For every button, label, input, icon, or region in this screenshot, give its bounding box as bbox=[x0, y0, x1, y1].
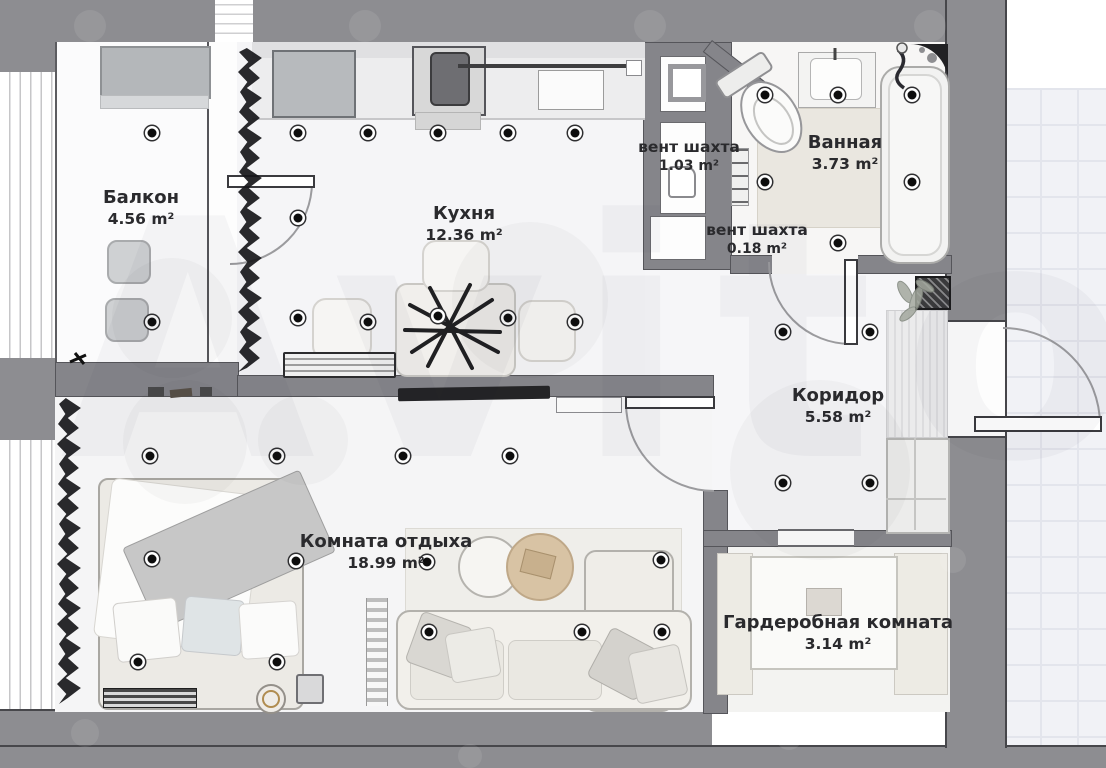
ceiling-light-icon bbox=[425, 628, 434, 637]
room-name: Ванная bbox=[808, 131, 882, 154]
robot-vacuum-ring bbox=[262, 690, 280, 708]
room-area: 0.18 m² bbox=[706, 240, 808, 258]
outer-wall-bottom-strip bbox=[0, 745, 1106, 768]
room-label-kitchen: Кухня 12.36 m² bbox=[425, 202, 502, 246]
room-area: 18.99 m² bbox=[300, 553, 473, 573]
ceiling-light-icon bbox=[148, 129, 157, 138]
ceiling-light-icon bbox=[578, 628, 587, 637]
facade-window-hatch-bottom bbox=[0, 440, 55, 709]
top-band-window-notch bbox=[215, 0, 253, 42]
watermark-circle bbox=[258, 395, 348, 485]
entry-vestibule-floor bbox=[945, 320, 1005, 438]
room-area: 1.03 m² bbox=[638, 157, 740, 175]
tv-panel bbox=[398, 386, 550, 402]
ceiling-light-icon bbox=[657, 556, 666, 565]
sofa-pillow-2 bbox=[444, 626, 502, 684]
watermark-circle bbox=[71, 719, 99, 747]
ceiling-light-icon bbox=[908, 91, 917, 100]
ceiling-light-icon bbox=[834, 239, 843, 248]
kitchen-stove-tray bbox=[415, 112, 481, 130]
bed-pillow-1 bbox=[112, 597, 182, 663]
outer-wall-bottom-left bbox=[0, 709, 712, 750]
room-name: вент шахта bbox=[638, 137, 740, 157]
room-label-vent-shaft-2: вент шахта 0.18 m² bbox=[706, 220, 808, 258]
ceiling-light-icon bbox=[571, 129, 580, 138]
media-shelf bbox=[556, 397, 622, 413]
corridor-cabinet-divider-v bbox=[914, 438, 916, 530]
room-name: вент шахта bbox=[706, 220, 808, 240]
room-name: Балкон bbox=[103, 186, 179, 209]
ceiling-light-icon bbox=[148, 555, 157, 564]
ceiling-light-icon bbox=[504, 129, 513, 138]
room-label-corridor: Коридор 5.58 m² bbox=[792, 384, 884, 428]
ceiling-light-icon bbox=[866, 328, 875, 337]
watermark-circle bbox=[634, 10, 666, 42]
ceiling-light-icon bbox=[834, 91, 843, 100]
bed-pillow-3 bbox=[238, 600, 300, 660]
room-name: Коридор bbox=[792, 384, 884, 407]
balcony-cabinet-shelf bbox=[100, 95, 209, 109]
kitchen-stove-element bbox=[430, 52, 470, 106]
room-name: Гардеробная комната bbox=[723, 611, 953, 634]
room-label-wardrobe: Гардеробная комната 3.14 m² bbox=[723, 611, 953, 655]
ceiling-light-icon bbox=[761, 91, 770, 100]
room-label-bathroom: Ванная 3.73 m² bbox=[808, 131, 882, 175]
bed-pillow-2 bbox=[181, 595, 246, 656]
kitchen-bench bbox=[283, 352, 396, 378]
outer-wall-top-left-corner bbox=[0, 0, 55, 72]
watermark-circle bbox=[74, 10, 106, 42]
ceiling-light-icon bbox=[779, 328, 788, 337]
outer-wall-left-mid bbox=[0, 358, 55, 440]
facade-window-hatch-top bbox=[0, 72, 55, 358]
room-area: 12.36 m² bbox=[425, 225, 502, 245]
doormat bbox=[915, 276, 951, 310]
ceiling-light-icon bbox=[434, 129, 443, 138]
room-label-balcony: Балкон 4.56 m² bbox=[103, 186, 179, 230]
room-label-lounge: Комната отдыха 18.99 m² bbox=[300, 530, 473, 574]
corridor-rug bbox=[886, 310, 948, 438]
sofa-pillow-4 bbox=[627, 643, 689, 705]
room-label-vent-shaft-1: вент шахта 1.03 m² bbox=[638, 137, 740, 175]
ceiling-light-icon bbox=[134, 658, 143, 667]
room-area: 3.73 m² bbox=[808, 154, 882, 174]
ceiling-light-icon bbox=[294, 129, 303, 138]
ceiling-light-icon bbox=[294, 314, 303, 323]
ceiling-light-icon bbox=[294, 214, 303, 223]
watermark-circle bbox=[458, 744, 482, 768]
bed-foot-bench bbox=[103, 688, 197, 708]
exterior-tiled-area bbox=[1003, 88, 1106, 745]
watermark-circle bbox=[940, 547, 966, 573]
vent-shaft-2-cell bbox=[650, 216, 706, 260]
room-area: 3.14 m² bbox=[723, 634, 953, 654]
kitchen-sink bbox=[538, 70, 604, 110]
humidifier bbox=[296, 674, 324, 704]
watermark-circle bbox=[112, 258, 232, 378]
ceiling-light-icon bbox=[273, 658, 282, 667]
vent-shaft-icon bbox=[668, 64, 706, 102]
ceiling-light-icon bbox=[364, 129, 373, 138]
room-area: 4.56 m² bbox=[103, 209, 179, 229]
kitchen-wall-socket bbox=[626, 60, 642, 76]
ladder-shelf bbox=[366, 598, 388, 706]
ceiling-light-icon bbox=[364, 318, 373, 327]
dining-chair-left bbox=[312, 298, 372, 360]
ceiling-light-icon bbox=[658, 628, 667, 637]
watermark-circle bbox=[123, 380, 247, 504]
balcony-cabinet bbox=[100, 46, 211, 99]
ceiling-light-icon bbox=[506, 452, 515, 461]
bathtub-inner bbox=[888, 74, 942, 256]
room-name: Кухня bbox=[425, 202, 502, 225]
floor-plan: Балкон 4.56 m² Кухня 12.36 m² вент шахта… bbox=[0, 0, 1106, 768]
room-area: 5.58 m² bbox=[792, 407, 884, 427]
room-name: Комната отдыха bbox=[300, 530, 473, 553]
watermark-circle bbox=[349, 10, 381, 42]
kitchen-rail bbox=[458, 64, 642, 68]
kitchen-fridge bbox=[272, 50, 356, 118]
watermark-circle bbox=[776, 724, 802, 750]
ceiling-light-icon bbox=[399, 452, 408, 461]
ceiling-light-icon bbox=[434, 312, 443, 321]
ceiling-light-icon bbox=[908, 178, 917, 187]
outer-wall-top bbox=[0, 0, 1003, 44]
watermark-circle bbox=[914, 10, 946, 42]
ceiling-light-icon bbox=[761, 178, 770, 187]
